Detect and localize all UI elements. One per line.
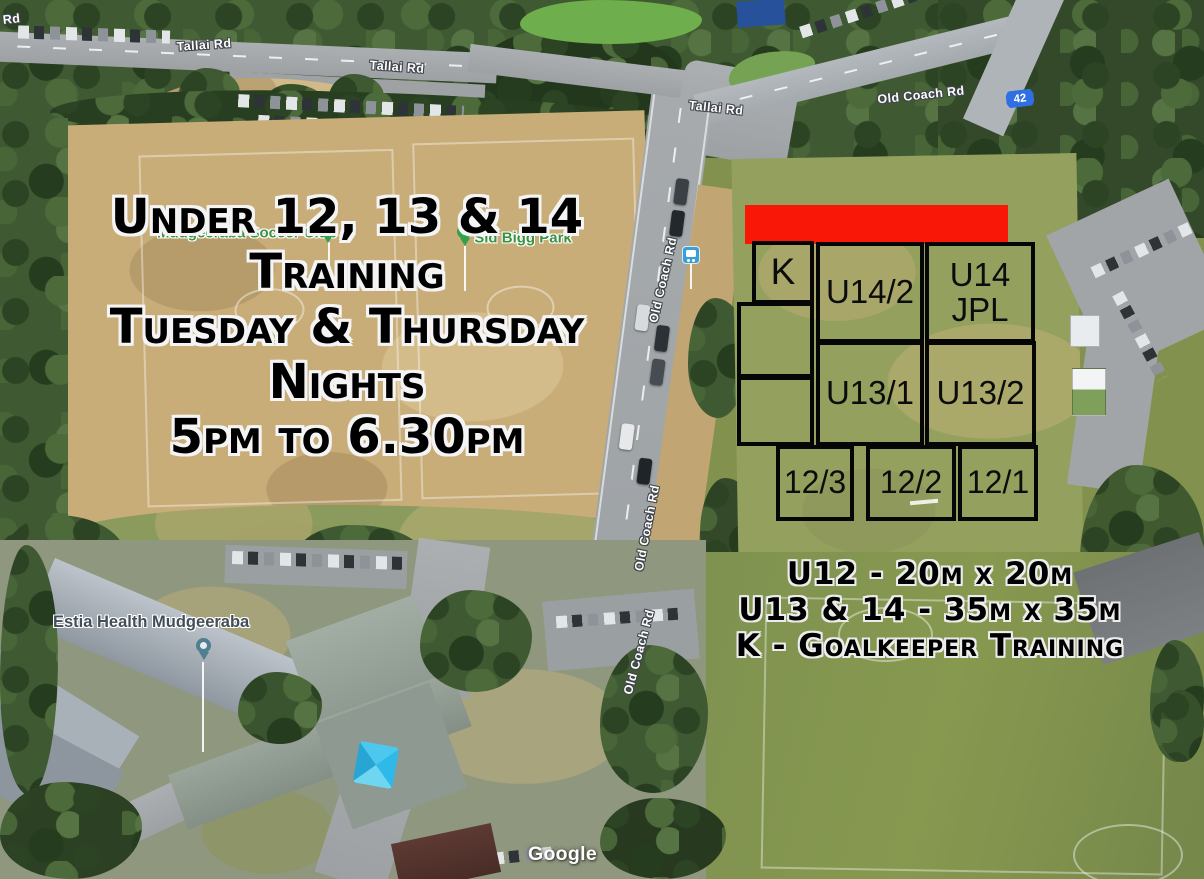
- zone-label: JPL: [952, 293, 1009, 328]
- zone-unlabeled-2: [737, 376, 814, 446]
- bus-glyph: [692, 259, 695, 262]
- zone-unlabeled-1: [737, 302, 814, 378]
- zone-u14-jpl: U14 JPL: [925, 242, 1035, 343]
- legend-line-3: K - Goalkeeper Training: [630, 628, 1204, 664]
- zone-label: U13/2: [936, 376, 1024, 411]
- zone-label: 12/2: [880, 466, 942, 500]
- blue-pyramid-roof: [353, 741, 400, 789]
- zone-k: K: [752, 241, 814, 304]
- legend-line-1: U12 - 20m x 20m: [630, 556, 1204, 592]
- zone-label: U14: [950, 258, 1011, 293]
- bus-glyph: [687, 259, 690, 262]
- size-legend: U12 - 20m x 20m U13 & 14 - 35m x 35m K -…: [630, 556, 1204, 664]
- title-line-3: Tuesday & Thursday: [37, 300, 657, 355]
- map-pin-estia-health: [196, 638, 211, 653]
- zone-label: 12/1: [967, 466, 1029, 500]
- training-title: Under 12, 13 & 14 Training Tuesday & Thu…: [37, 190, 657, 465]
- zone-12-1: 12/1: [958, 445, 1038, 521]
- title-line-2: Training: [37, 245, 657, 300]
- zone-label: U13/1: [826, 376, 914, 411]
- bus-stop-icon: [683, 247, 699, 263]
- zone-12-3: 12/3: [776, 445, 854, 521]
- zone-label: 12/3: [784, 466, 846, 500]
- car: [673, 178, 689, 205]
- aerial-map-canvas: Tallai Rd Tallai Rd Tallai Rd Tallai Rd …: [0, 0, 1204, 879]
- pin-stem: [202, 662, 204, 752]
- route-42-shield: 42: [1005, 88, 1035, 108]
- pitch-center-circle: [1073, 824, 1183, 879]
- google-watermark: Google: [528, 843, 597, 866]
- place-label-estia-health: Estia Health Mudgeeraba: [53, 613, 249, 632]
- car: [669, 210, 685, 237]
- title-line-4: Nights: [37, 355, 657, 410]
- zone-u13-2: U13/2: [925, 341, 1036, 446]
- zone-label: U14/2: [826, 275, 914, 310]
- title-line-5: 5pm to 6.30pm: [37, 410, 657, 465]
- zone-u13-1: U13/1: [816, 341, 924, 446]
- blue-roof-building: [736, 0, 786, 28]
- route-number: 42: [1013, 92, 1027, 105]
- legend-line-2: U13 & 14 - 35m x 35m: [630, 592, 1204, 628]
- zone-u14-2: U14/2: [816, 242, 924, 343]
- title-line-1: Under 12, 13 & 14: [37, 190, 657, 245]
- zone-label: K: [771, 253, 796, 292]
- training-area-highlight: [745, 205, 1008, 244]
- zone-12-2: 12/2: [866, 445, 956, 521]
- shed-building: [1072, 368, 1106, 416]
- bus-glyph: [686, 250, 696, 257]
- shed-building: [1070, 315, 1100, 347]
- bus-stop-stem: [690, 264, 692, 289]
